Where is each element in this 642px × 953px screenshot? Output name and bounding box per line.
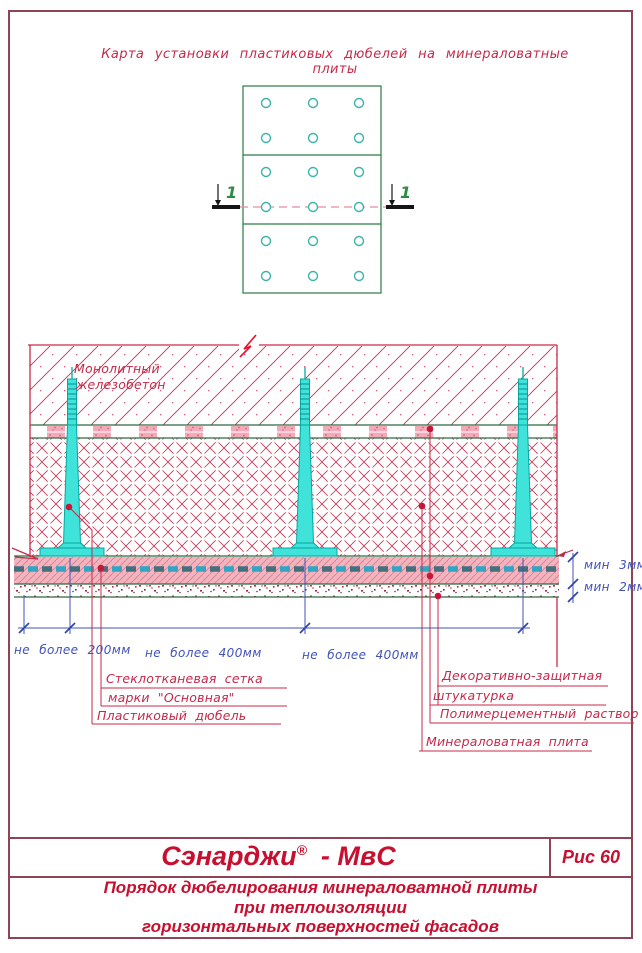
brand-suffix: - МвС (321, 841, 396, 871)
dim-dowel-spacing-1: не более 400мм (145, 646, 262, 660)
titleblock-top-line (8, 837, 633, 839)
label-dowel: Пластиковый дюбель (97, 708, 246, 723)
break-gap (239, 336, 259, 353)
section-view (0, 330, 642, 845)
label-plaster-line1: Декоративно-защитная (442, 668, 602, 683)
label-wool: Минераловатная плита (426, 734, 589, 749)
mineral-wool-layer (30, 438, 557, 556)
cut-number-left: 1 (226, 183, 237, 202)
label-mesh-line2: марки "Основная" (108, 690, 235, 705)
brand-name: Сэнарджи (161, 841, 296, 871)
adhesive-layer (30, 426, 557, 438)
caption-line3: горизонтальных поверхностей фасадов (8, 917, 633, 937)
registered-mark: ® (297, 842, 307, 858)
dim-dowel-spacing-2: не более 400мм (302, 648, 419, 662)
mortar-arrow-right (557, 550, 573, 557)
dim-edge-spacing: не более 200мм (14, 643, 131, 657)
dim-plaster-thickness: мин 2мм (584, 580, 642, 594)
caption-line1: Порядок дюбелирования минераловатной пли… (8, 878, 633, 898)
plan-view (0, 75, 642, 310)
label-mortar: Полимерцементный раствор (440, 706, 639, 721)
label-plaster-line2: штукатурка (433, 688, 514, 703)
caption-line2: при теплоизоляции (8, 898, 633, 918)
drawing-sheet: Карта установки пластиковых дюбелей на м… (0, 0, 642, 953)
dim-mortar-thickness: мин 3мм (584, 558, 642, 572)
plaster-layer (14, 585, 559, 597)
figure-number: Рис 60 (549, 847, 633, 868)
dowel-positions (262, 99, 364, 281)
drawing-caption: Порядок дюбелирования минераловатной пли… (8, 878, 633, 937)
cut-number-right: 1 (400, 183, 411, 202)
label-concrete-line2: железобетон (76, 377, 166, 392)
label-concrete-line1: Монолитный (74, 361, 160, 376)
brand-title: Сэнарджи®- МвС (8, 841, 549, 872)
label-mesh-line1: Стеклотканевая сетка (106, 671, 263, 686)
drawing-title: Карта установки пластиковых дюбелей на м… (88, 47, 582, 77)
insulation-plates-outline (243, 86, 381, 293)
